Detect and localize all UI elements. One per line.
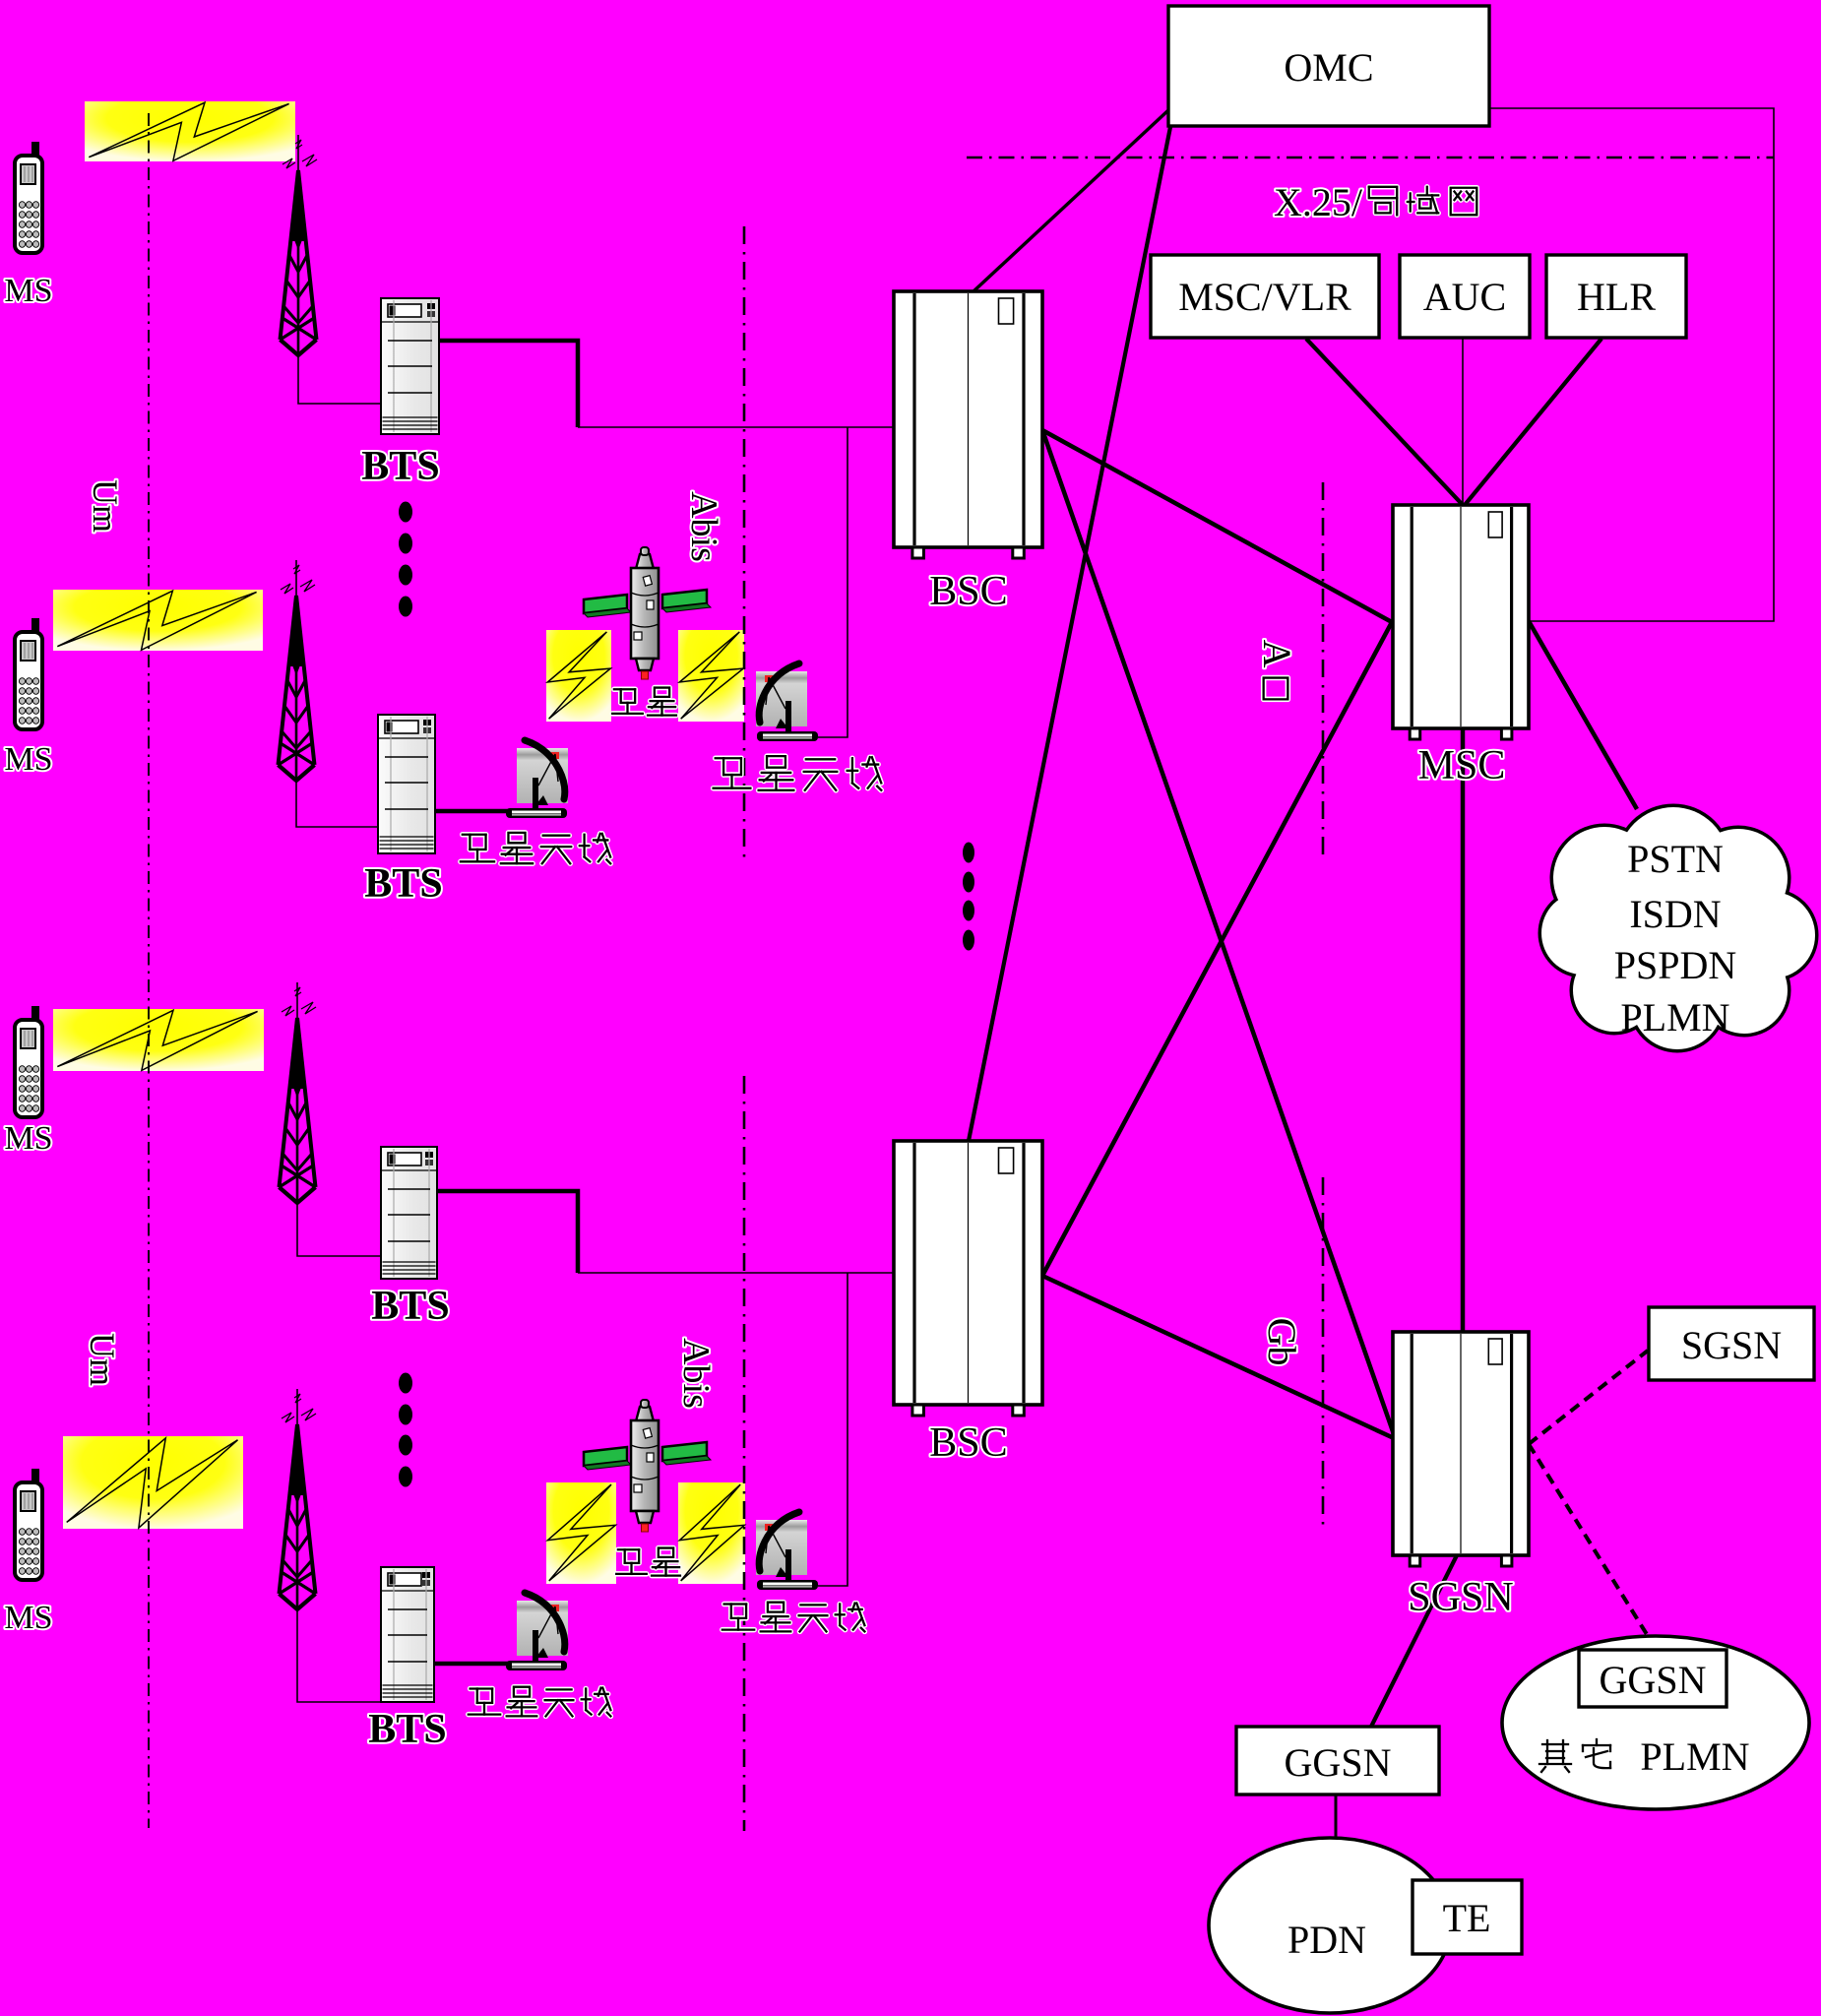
svg-text:GGSN: GGSN: [1600, 1658, 1707, 1702]
svg-text:Abis: Abis: [675, 1338, 717, 1409]
svg-text:HLR: HLR: [1577, 275, 1656, 319]
svg-text:PSTN: PSTN: [1627, 837, 1724, 881]
svg-text:PSPDN: PSPDN: [1614, 943, 1737, 987]
svg-text:PLMN: PLMN: [1640, 1734, 1749, 1779]
svg-text:BTS: BTS: [371, 1284, 449, 1329]
svg-text:MSC: MSC: [1418, 743, 1506, 788]
svg-text:MSC/VLR: MSC/VLR: [1178, 275, 1351, 319]
svg-text:BTS: BTS: [364, 861, 442, 907]
svg-text:A: A: [1255, 640, 1299, 668]
svg-text:MS: MS: [4, 273, 52, 309]
svg-text:MS: MS: [4, 741, 52, 778]
svg-text:Abis: Abis: [683, 491, 724, 562]
svg-text:Gb: Gb: [1260, 1318, 1304, 1366]
svg-text:ISDN: ISDN: [1629, 892, 1721, 936]
svg-text:AUC: AUC: [1423, 275, 1506, 319]
svg-text:SGSN: SGSN: [1408, 1575, 1513, 1620]
svg-text:OMC: OMC: [1284, 45, 1373, 90]
svg-text:BSC: BSC: [929, 569, 1007, 614]
svg-text:BTS: BTS: [361, 444, 439, 489]
svg-text:BTS: BTS: [368, 1707, 446, 1752]
svg-text:BSC: BSC: [929, 1420, 1007, 1466]
svg-text:MS: MS: [4, 1600, 52, 1636]
svg-text:PDN: PDN: [1287, 1918, 1366, 1962]
svg-text:MS: MS: [4, 1120, 52, 1157]
svg-text:SGSN: SGSN: [1681, 1323, 1782, 1367]
svg-text:X.25/: X.25/: [1274, 180, 1363, 224]
svg-text:PLMN: PLMN: [1620, 995, 1729, 1039]
svg-text:TE: TE: [1443, 1896, 1491, 1940]
svg-text:GGSN: GGSN: [1285, 1740, 1392, 1785]
svg-text:Um: Um: [83, 1333, 122, 1386]
svg-text:Um: Um: [86, 479, 125, 533]
